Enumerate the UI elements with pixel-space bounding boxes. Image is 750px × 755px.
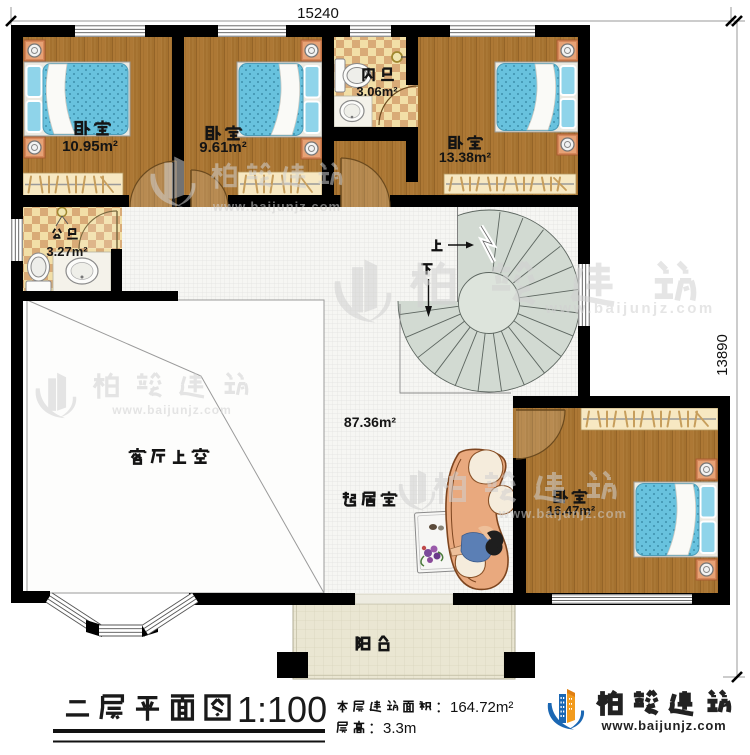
svg-text:www.baijunjz.com: www.baijunjz.com (544, 300, 714, 317)
svg-text:3.06m²: 3.06m² (356, 84, 398, 99)
svg-text:www.baijunjz.com: www.baijunjz.com (111, 403, 232, 417)
svg-text:：164.72m²: ：164.72m² (435, 699, 513, 716)
svg-text:3.27m²: 3.27m² (46, 244, 88, 259)
svg-text:13890: 13890 (714, 334, 731, 376)
svg-text:www.baijunjz.com: www.baijunjz.com (498, 506, 627, 521)
svg-text:1:100: 1:100 (237, 689, 327, 730)
svg-text:87.36m²: 87.36m² (344, 414, 396, 430)
svg-text:www.baijunjz.com: www.baijunjz.com (601, 718, 727, 733)
svg-text:10.95m²: 10.95m² (62, 138, 118, 155)
svg-text:9.61m²: 9.61m² (199, 139, 247, 156)
svg-text:www.baijunjz.com: www.baijunjz.com (212, 199, 341, 214)
svg-text:15240: 15240 (297, 5, 339, 22)
svg-text:13.38m²: 13.38m² (439, 149, 491, 165)
svg-text:：3.3m: ：3.3m (368, 720, 416, 737)
